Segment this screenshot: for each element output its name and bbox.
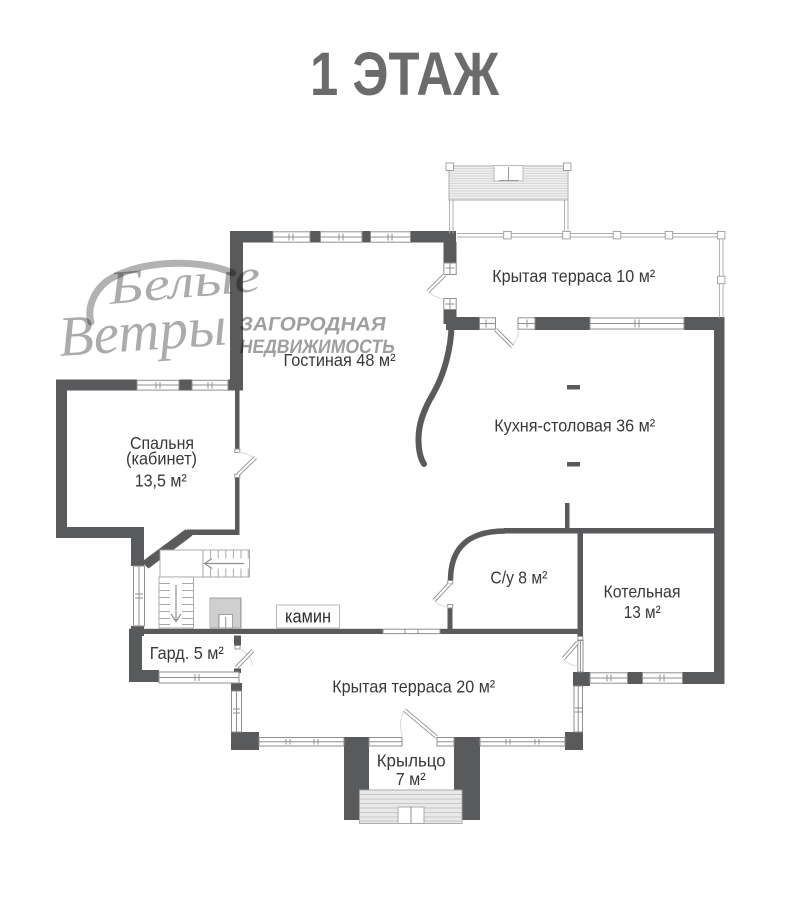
svg-text:Крыльцо: Крыльцо [377,751,446,771]
svg-text:Крытая терраса 20 м²: Крытая терраса 20 м² [332,677,495,697]
svg-text:Кухня-столовая 36 м²: Кухня-столовая 36 м² [494,416,655,436]
svg-text:Гостиная 48 м²: Гостиная 48 м² [284,350,396,370]
svg-text:Ветры: Ветры [57,294,229,369]
svg-text:Крытая терраса 10 м²: Крытая терраса 10 м² [492,266,655,286]
svg-text:С/у 8 м²: С/у 8 м² [490,568,547,588]
svg-text:7 м²: 7 м² [396,769,426,789]
svg-text:13 м²: 13 м² [624,602,661,622]
svg-text:13,5 м²: 13,5 м² [135,471,187,491]
svg-text:1 ЭТАЖ: 1 ЭТАЖ [310,40,500,108]
svg-text:камин: камин [285,607,331,627]
svg-text:Гард. 5 м²: Гард. 5 м² [150,643,224,663]
svg-text:ЗАГОРОДНАЯ: ЗАГОРОДНАЯ [238,314,387,336]
svg-text:Котельная: Котельная [604,582,681,602]
svg-text:(кабинет): (кабинет) [126,449,197,469]
